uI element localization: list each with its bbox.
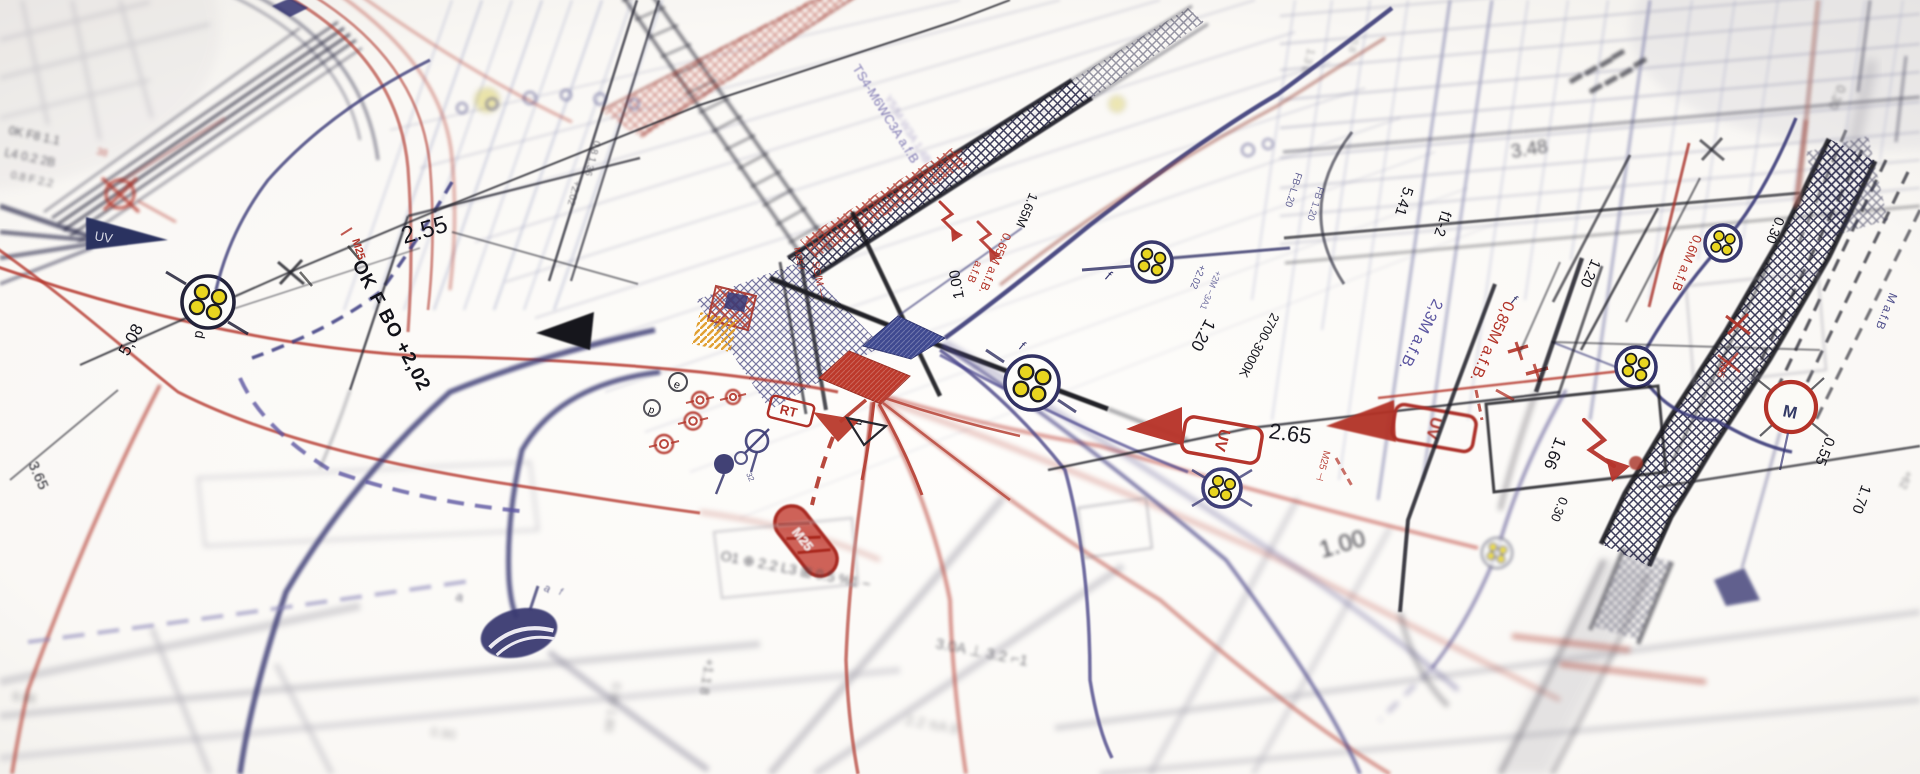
svg-text:UV: UV — [93, 228, 114, 246]
